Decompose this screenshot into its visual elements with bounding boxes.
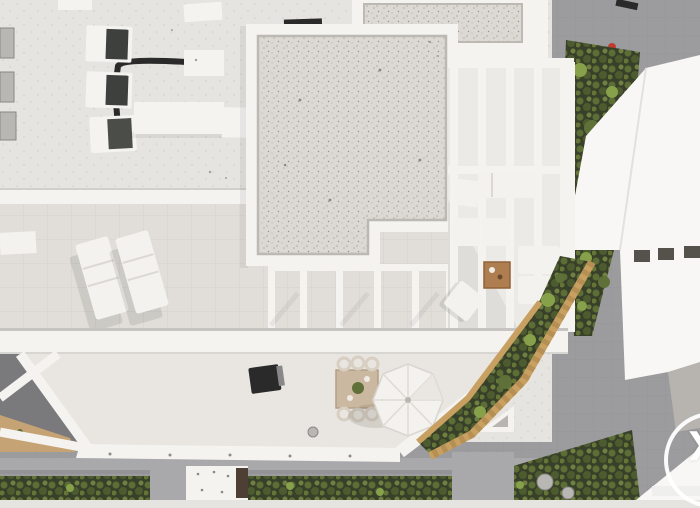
stepping-stone xyxy=(562,487,574,499)
roof-box xyxy=(134,102,224,134)
entrance-canopy xyxy=(186,466,248,500)
path-crossing xyxy=(452,452,514,500)
coffee-table xyxy=(484,262,510,288)
ac-unit xyxy=(85,71,132,109)
window-slot xyxy=(634,250,650,262)
barbecue-grill xyxy=(248,363,285,393)
table-plant xyxy=(352,382,364,394)
vent-box xyxy=(184,50,224,76)
window-slot xyxy=(658,248,674,260)
rooftop-aerial-photo: ❯ xyxy=(0,0,700,500)
sofa-cushion xyxy=(452,218,480,246)
daybed xyxy=(478,172,536,198)
parapet-band xyxy=(0,328,568,354)
vent-box xyxy=(58,0,92,10)
chevron-right-icon: ❯ xyxy=(686,430,700,458)
photo-scene xyxy=(0,0,700,500)
edge-equipment xyxy=(0,28,16,140)
bollard-light xyxy=(308,427,318,437)
stepping-stone xyxy=(537,474,553,490)
window-slot xyxy=(684,246,700,258)
vent-box xyxy=(183,2,222,23)
gravel-roof-main xyxy=(240,24,458,268)
ac-unit xyxy=(85,25,132,63)
sofa-cushion xyxy=(518,246,560,274)
sofa-cushion xyxy=(482,218,510,246)
ac-unit xyxy=(89,115,137,153)
